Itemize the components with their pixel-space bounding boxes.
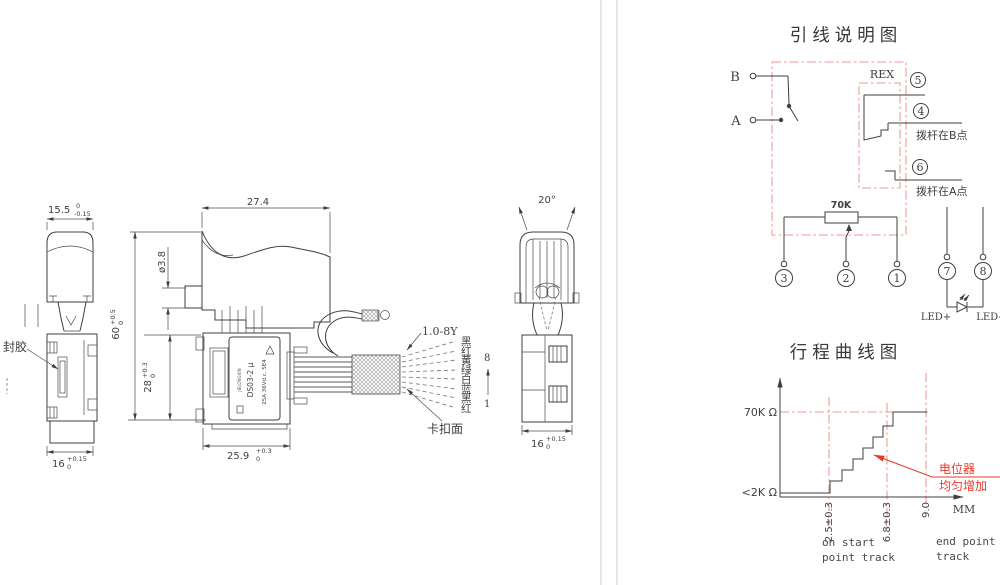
svg-text:5: 5 [915, 74, 922, 87]
wire-spec-label: 1.0-8Y [422, 325, 458, 338]
terminal-a-label: A [730, 114, 741, 129]
dim-body-height: 28 +0.3 0 [141, 362, 157, 393]
drawing-canvas: 15.5 0 -0.15 16 +0.15 0 封胶 27.4 JIELONGX… [0, 0, 1000, 585]
dim-side-top: 15.5 [48, 205, 70, 216]
nameplate-model: DS03-2 μ [246, 362, 255, 397]
engineering-drawing-sheet: 15.5 0 -0.15 16 +0.15 0 封胶 27.4 JIELONGX… [0, 0, 1000, 585]
x-tick-9.0: 9.0 [921, 502, 932, 518]
y-min-label: <2K Ω [742, 486, 777, 499]
terminal-b-label: B [730, 70, 740, 85]
nameplate-logo [237, 406, 243, 413]
connector-block [549, 386, 567, 402]
side-trigger-edge [58, 302, 86, 331]
front-view: 27.4 JIELONGXIN DS03-2 μ 25A 36Vd.c. 5E4… [109, 197, 330, 463]
svg-text:7: 7 [944, 265, 951, 278]
svg-text:28: 28 [143, 380, 154, 393]
curve-title: 行程曲线图 [790, 343, 903, 363]
pin-2: 2 [838, 270, 855, 287]
cert-triangle-icon [266, 346, 274, 354]
pull-rod-lug [185, 286, 202, 308]
pin-number-top: 8 [484, 353, 490, 364]
svg-text:0: 0 [117, 321, 125, 325]
dim-rear-angle: 20° [538, 195, 556, 206]
terminal-pin [294, 347, 307, 353]
potentiometer-value: 70K [831, 200, 852, 211]
lever-at-a-note: 拨杆在A点 [916, 184, 968, 198]
side-view: 15.5 0 -0.15 16 +0.15 0 封胶 [3, 202, 97, 471]
led-icon [957, 294, 969, 312]
lever-at-b-note: 拨杆在B点 [916, 128, 968, 142]
dim-front-bottom-lower-tol: 0 [256, 455, 260, 463]
side-cap-outline [47, 232, 93, 302]
pin-number-bottom: 1 [484, 399, 490, 410]
dim-rod-diameter: ø3.8 [157, 251, 168, 273]
dim-front-bottom: 25.9 [227, 451, 249, 462]
annotation-line2: 均匀增加 [939, 479, 987, 493]
pin-1: 1 [889, 270, 906, 287]
dim-side-bottom: 16 [52, 459, 65, 470]
pin-7: 7 [939, 263, 956, 280]
switch-blade [789, 106, 798, 121]
led-loop-wire [318, 311, 362, 353]
trigger-outline [202, 231, 330, 328]
nameplate-rating: 25A 36Vd.c. 5E4 [262, 359, 268, 405]
nameplate-brand: JIELONGXIN [237, 368, 242, 392]
end-note-line2: track [936, 550, 969, 563]
led-tip [381, 311, 390, 320]
dim-front-bottom-upper-tol: +0.3 [256, 447, 272, 455]
svg-text:4: 4 [918, 105, 925, 118]
clip-face-label: 卡扣面 [427, 422, 463, 436]
svg-text:60: 60 [111, 327, 122, 340]
rex-dashed-box [859, 83, 900, 188]
dim-rear-bottom-lower-tol: 0 [546, 443, 550, 451]
dim-front-width: 27.4 [247, 197, 269, 208]
braided-sleeve [352, 355, 400, 394]
annotation-line1: 电位器 [939, 461, 975, 476]
svg-text:+0.5: +0.5 [109, 309, 117, 325]
wiring-title: 引线说明图 [790, 26, 903, 46]
led-plus-label: LED+ [921, 312, 951, 323]
rear-body [522, 335, 572, 422]
potentiometer [825, 212, 858, 223]
terminal-pin [294, 398, 307, 404]
dim-rear-bottom-upper-tol: +0.15 [546, 435, 566, 443]
staircase-curve [780, 412, 927, 493]
break-marks [25, 304, 38, 327]
pin-6: 6 [913, 160, 928, 175]
svg-text:ø3.8: ø3.8 [157, 251, 168, 273]
end-note-line1: end point [936, 535, 996, 548]
svg-text:1: 1 [894, 272, 901, 285]
pin-4: 4 [914, 104, 929, 119]
start-note-line2: point track [822, 551, 895, 564]
travel-curve: 行程曲线图 MM 70K Ω <2K Ω 电位器 均匀增加 2.5±0.3 6.… [742, 343, 1000, 564]
roller [536, 286, 548, 298]
annotation-leader [874, 455, 1000, 477]
dim-side-top-lower-tol: -0.15 [74, 210, 91, 218]
seal-slot [58, 357, 67, 397]
dim-height: 60 +0.5 0 [109, 309, 125, 340]
wire-color-8: 红 [461, 402, 472, 415]
svg-text:3: 3 [781, 272, 788, 285]
pin-3: 3 [776, 270, 793, 287]
dim-side-bottom-lower-tol: 0 [67, 463, 71, 471]
pin-8: 8 [975, 263, 992, 280]
wire-bundle: 黑 红 黄 绿 白 蓝 黑 红 8 1 1.0-8Y 卡扣面 [294, 310, 490, 436]
dim-side-bottom-upper-tol: +0.15 [67, 455, 87, 463]
pin-5: 5 [911, 73, 926, 88]
led-minus-label: LED- [976, 312, 1000, 323]
start-note-line1: on start [822, 536, 875, 549]
dim-side-top-upper-tol: 0 [76, 202, 80, 210]
rex-label: REX [870, 68, 894, 81]
connector-block [549, 346, 567, 362]
wiring-diagram: 引线说明图 B A REX 5 4 6 拨杆在B点 拨杆在A点 70K 3 2 … [730, 26, 1000, 323]
svg-text:8: 8 [980, 265, 987, 278]
svg-text:6: 6 [917, 161, 924, 174]
svg-text:0: 0 [149, 374, 157, 378]
svg-text:+0.3: +0.3 [141, 362, 149, 378]
side-body [47, 334, 97, 421]
dim-rear-bottom: 16 [531, 439, 544, 450]
svg-text:2: 2 [843, 272, 850, 285]
y-max-label: 70K Ω [744, 406, 777, 419]
rear-view: 20° 16 +0.15 0 [515, 195, 579, 451]
rex-block [864, 95, 888, 140]
x-tick-6.8: 6.8±0.3 [882, 502, 893, 542]
wiper-arrow [846, 224, 852, 231]
x-unit-label: MM [953, 503, 976, 516]
seal-label: 封胶 [3, 339, 27, 354]
